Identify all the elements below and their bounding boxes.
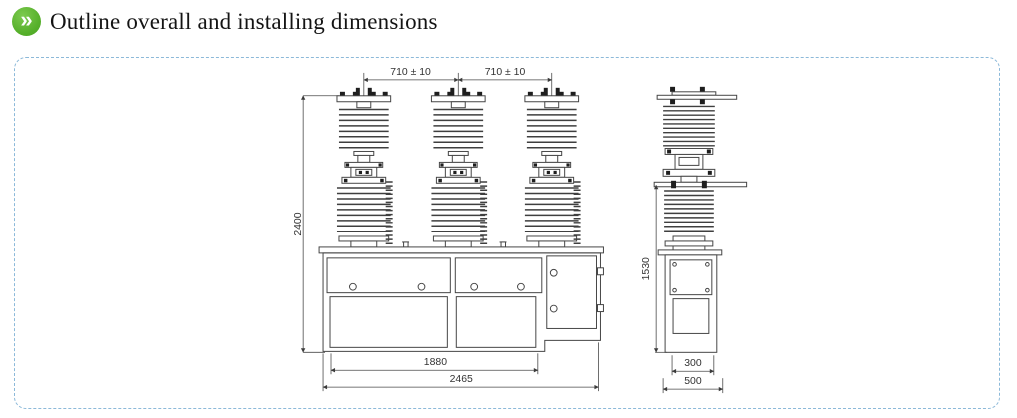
insulator-column-phase-a	[337, 88, 391, 247]
dim-height-label: 2400	[293, 212, 304, 235]
dim-side-overall-depth-label: 500	[684, 376, 702, 387]
dim-phase-spacing-left-label: 710 ± 10	[390, 67, 431, 78]
dim-overall-width: 2465	[323, 342, 598, 391]
dim-side-cabinet-width-label: 300	[684, 358, 702, 369]
side-insulator-column	[654, 87, 746, 250]
side-cabinet-top-flange	[658, 250, 722, 255]
icon-glyph: »	[20, 9, 32, 31]
dim-base-width: 1880	[331, 353, 538, 374]
door-hinge-bottom	[597, 305, 603, 312]
section-header: » Outline overall and installing dimensi…	[12, 7, 438, 36]
cabinet-side	[658, 250, 722, 352]
dim-side-overall-depth: 500	[663, 376, 723, 393]
dim-phase-spacing-right-label: 710 ± 10	[485, 67, 526, 78]
dim-base-width-label: 1880	[424, 357, 447, 368]
door-hinge-top	[597, 268, 603, 275]
dim-phase-spacing: 710 ± 10 710 ± 10	[364, 67, 552, 98]
cabinet-front	[319, 247, 603, 351]
dim-side-height-label: 1530	[641, 257, 652, 280]
insulator-column-phase-c	[525, 88, 579, 247]
page-title: Outline overall and installing dimension…	[50, 9, 438, 35]
cabinet-roof-plate	[319, 247, 603, 253]
cabinet-side-door	[547, 256, 597, 329]
dim-side-height: 1530	[641, 185, 667, 352]
cabinet-panel-top-left	[327, 258, 450, 293]
technical-drawing: 710 ± 10 710 ± 10 2400	[15, 58, 999, 408]
insulator-column-phase-b	[431, 88, 485, 247]
cabinet-panel-bottom-right	[456, 297, 536, 348]
top-terminal-plate	[657, 95, 737, 99]
cabinet-panel-top-right	[455, 258, 542, 293]
dim-side-cabinet-width: 300	[672, 355, 714, 375]
front-view: 710 ± 10 710 ± 10 2400	[293, 67, 603, 391]
mid-mounting-plate	[654, 182, 746, 186]
drawing-panel: 710 ± 10 710 ± 10 2400	[14, 57, 1000, 409]
dim-overall-width-label: 2465	[450, 374, 473, 385]
side-cabinet-lower-panel	[673, 299, 709, 334]
side-view: 1530 300 500	[641, 87, 746, 393]
double-chevron-right-icon: »	[12, 7, 41, 36]
cabinet-panel-bottom-left	[330, 297, 447, 348]
